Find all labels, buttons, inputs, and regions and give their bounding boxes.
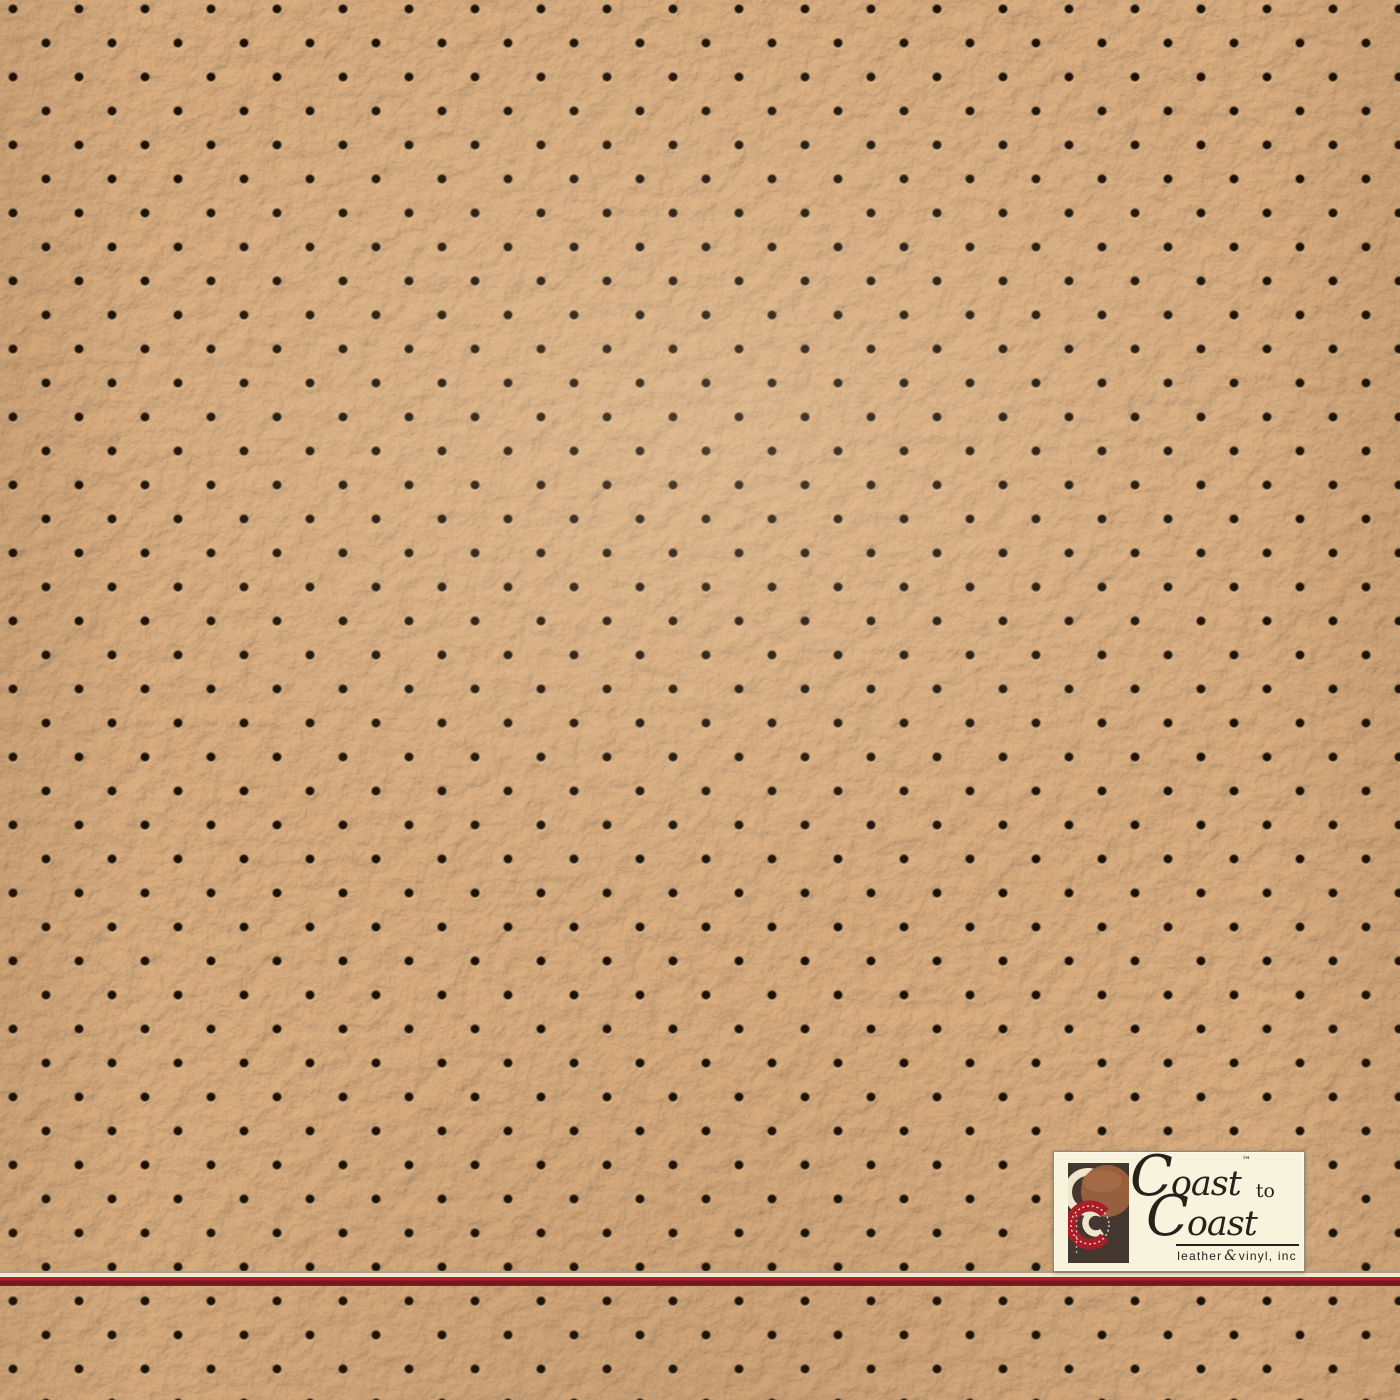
logo-word-to: to: [1256, 1182, 1275, 1201]
logo-coast2-cap: C: [1146, 1189, 1187, 1245]
logo-coast2-rest: oast: [1187, 1207, 1257, 1242]
red-stripe: [0, 1277, 1400, 1286]
logo-tagline: leather&vinyl, inc: [1172, 1248, 1302, 1264]
logo-tagline-ampersand: &: [1224, 1248, 1236, 1264]
logo-line-coast: Coast: [1146, 1189, 1257, 1245]
coast-to-coast-logo-mark-icon: [1068, 1163, 1129, 1263]
logo-tagline-vinyl-inc: vinyl, inc: [1239, 1249, 1297, 1263]
logo-rule: [1176, 1244, 1299, 1246]
logo-trademark: ™: [1242, 1157, 1251, 1166]
logo-tagline-leather: leather: [1177, 1249, 1222, 1263]
leather-swatch-photo: Coast™to Coast leather&vinyl, inc: [0, 0, 1400, 1400]
coast-to-coast-logo: Coast™to Coast leather&vinyl, inc: [1053, 1151, 1305, 1272]
